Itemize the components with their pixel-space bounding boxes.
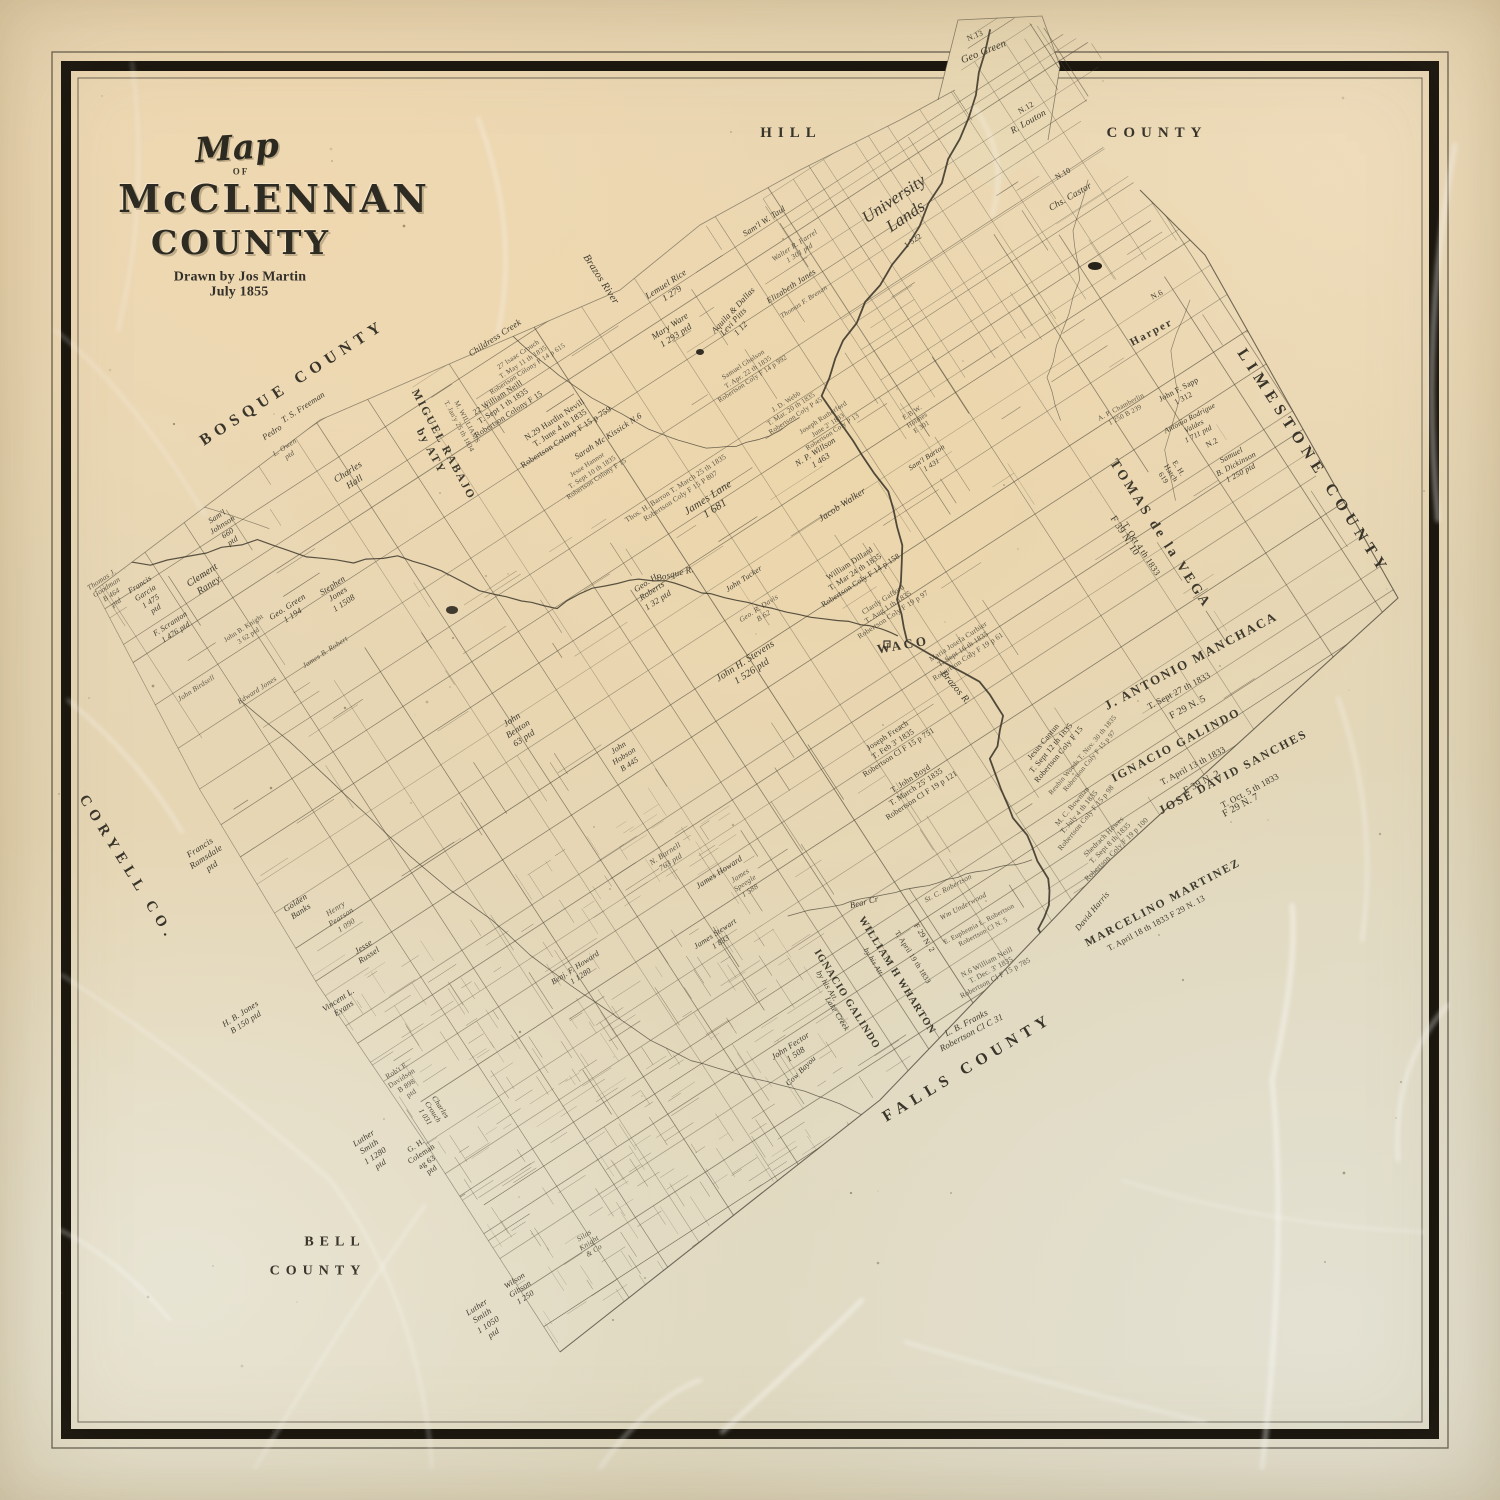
waco-town-marker — [884, 641, 890, 647]
map-sheet: Map OF McCLENNAN COUNTY Drawn by Jos Mar… — [0, 0, 1500, 1500]
map-engraving — [0, 0, 1500, 1500]
paper-creases — [55, 62, 1455, 1468]
county-boundary — [95, 90, 1398, 1352]
river-lines — [100, 30, 1190, 1119]
ink-blots — [446, 262, 1102, 614]
